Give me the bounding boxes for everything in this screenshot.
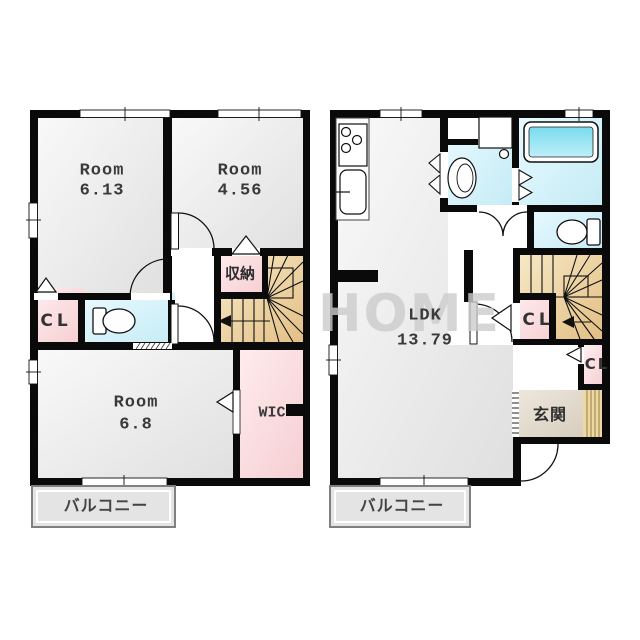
ldk-area: 13.79 <box>397 332 453 351</box>
toilet-icon-1f <box>557 219 600 245</box>
closet-entry-label: CL <box>585 355 610 373</box>
storage-label: 収納 <box>225 263 255 284</box>
room-68-floor <box>30 342 240 485</box>
kitchen <box>336 118 369 220</box>
room-456-name: Room <box>218 162 263 181</box>
room-613-floor <box>30 110 171 300</box>
bathtub-icon <box>524 122 598 162</box>
toilet-icon-2f <box>93 308 135 334</box>
kitchen-sink-icon <box>336 170 366 214</box>
balcony-1f-label: バルコニー <box>360 492 445 516</box>
wic-label: WIC <box>258 405 285 422</box>
entrance-door-arc <box>521 444 558 481</box>
closet-2f-label: CL <box>40 311 71 331</box>
room-68-area: 6.8 <box>119 416 153 435</box>
entrance-porch <box>583 390 605 437</box>
ldk-name: LDK <box>408 307 442 326</box>
stove-icon <box>339 124 367 166</box>
washroom-niche <box>448 117 478 141</box>
entrance-label: 玄関 <box>533 401 567 425</box>
room-613-name: Room <box>80 162 125 181</box>
balcony-2f-label: バルコニー <box>64 492 149 516</box>
closet-hall-label: CL <box>522 310 553 330</box>
room-68-name: Room <box>114 394 159 413</box>
room-456-area: 4.56 <box>218 182 263 201</box>
first-floor-plan <box>326 107 610 527</box>
washbasin-icon <box>448 158 476 198</box>
floorplan-image: HOME Room 6.13 Room 4.56 収納 CL Room 6.8 … <box>0 0 640 640</box>
room-613-area: 6.13 <box>80 182 125 201</box>
